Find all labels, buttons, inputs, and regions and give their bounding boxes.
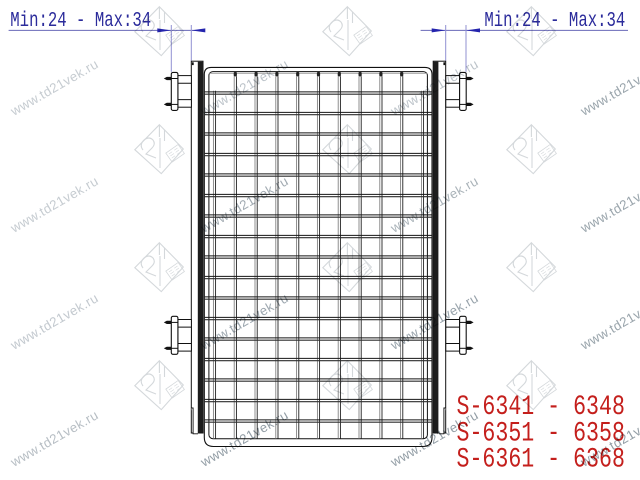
svg-text:www.td21vek.ru: www.td21vek.ru [7, 173, 101, 236]
svg-text:www.td21vek.ru: www.td21vek.ru [7, 407, 101, 470]
svg-text:www.td21vek.ru: www.td21vek.ru [577, 173, 640, 236]
svg-text:www.td21vek.ru: www.td21vek.ru [7, 56, 101, 119]
svg-text:www.td21vek.ru: www.td21vek.ru [577, 290, 640, 353]
svg-text:www.td21vek.ru: www.td21vek.ru [577, 56, 640, 119]
svg-text:Min:24 - Max:34: Min:24 - Max:34 [10, 8, 151, 33]
svg-text:www.td21vek.ru: www.td21vek.ru [7, 290, 101, 353]
svg-text:Min:24 - Max:34: Min:24 - Max:34 [484, 8, 625, 33]
